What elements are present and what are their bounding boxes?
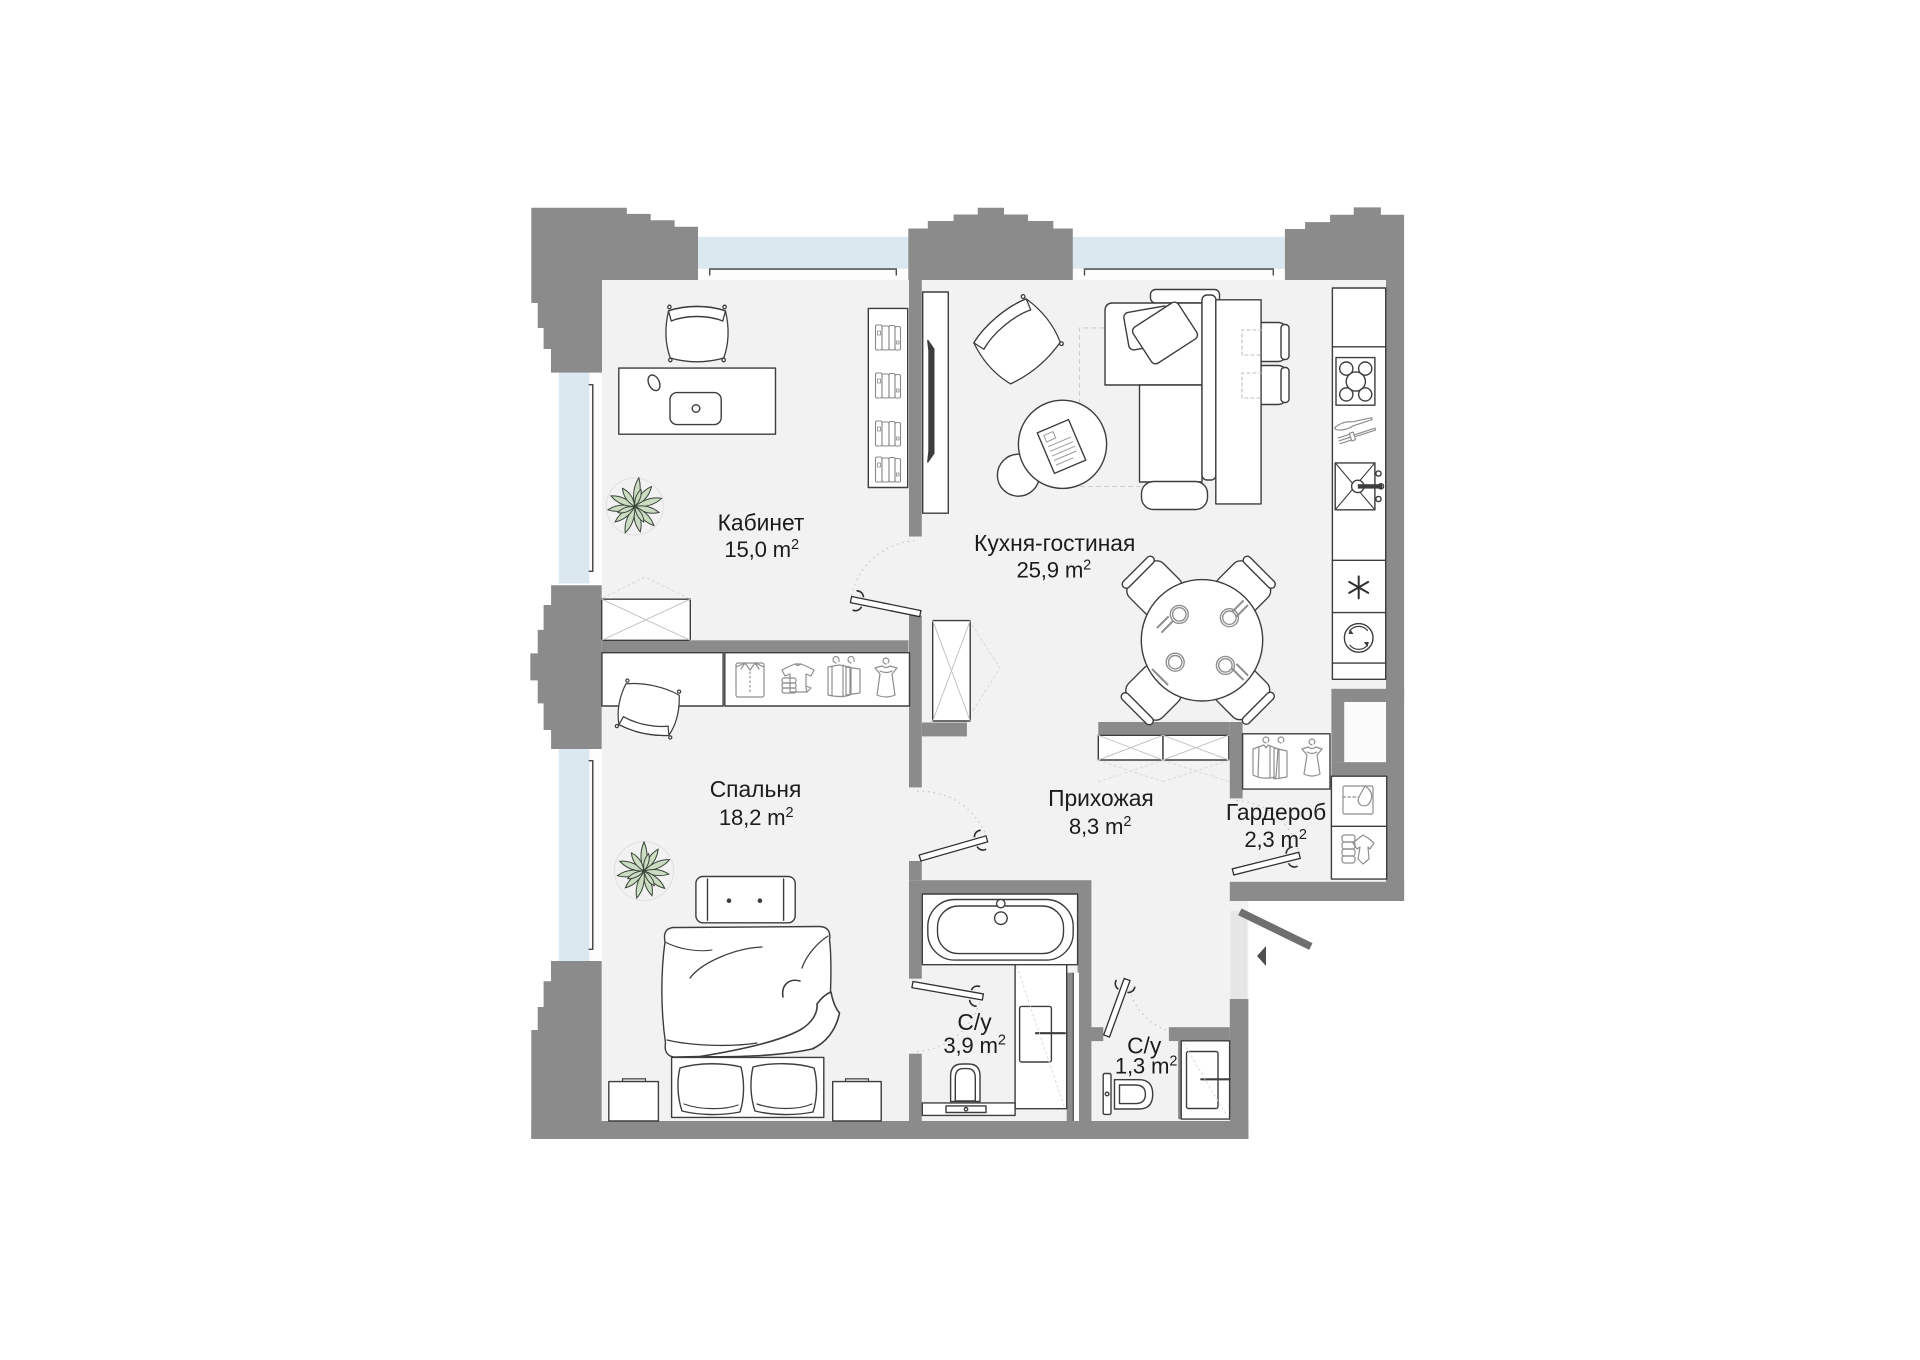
- svg-text:Гардероб: Гардероб: [1226, 799, 1326, 825]
- svg-text:С/у: С/у: [957, 1009, 992, 1035]
- svg-text:3,9 m2: 3,9 m2: [943, 1033, 1006, 1058]
- svg-text:Кухня-гостиная: Кухня-гостиная: [974, 530, 1135, 556]
- svg-text:Кабинет: Кабинет: [718, 510, 805, 536]
- svg-text:Прихожая: Прихожая: [1048, 785, 1154, 811]
- svg-text:18,2 m2: 18,2 m2: [719, 805, 794, 830]
- svg-text:2,3 m2: 2,3 m2: [1244, 827, 1307, 852]
- svg-text:8,3 m2: 8,3 m2: [1069, 814, 1132, 839]
- svg-text:15,0 m2: 15,0 m2: [724, 537, 799, 562]
- svg-text:Спальня: Спальня: [710, 776, 802, 802]
- svg-text:25,9 m2: 25,9 m2: [1017, 557, 1092, 582]
- svg-text:1,3 m2: 1,3 m2: [1115, 1053, 1178, 1078]
